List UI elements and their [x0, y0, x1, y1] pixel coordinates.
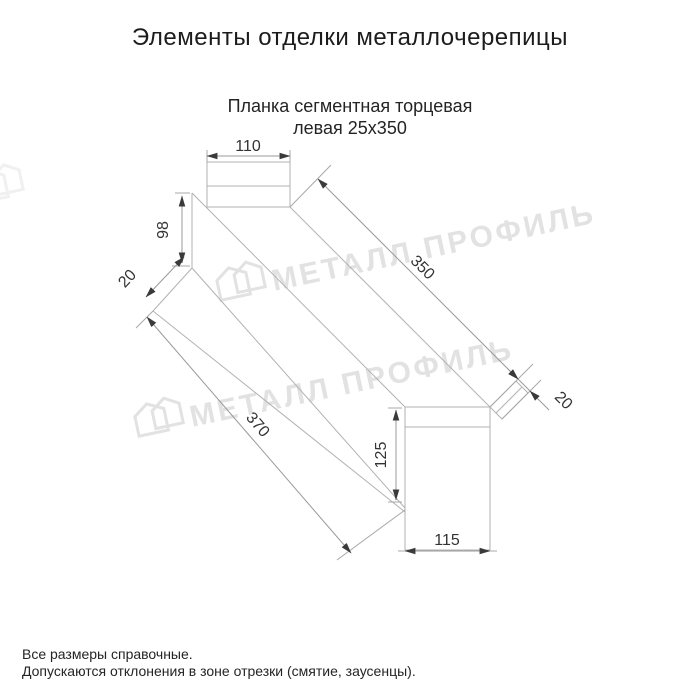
- dimension-top-width: 110: [207, 138, 290, 156]
- dimension-left-hem: 20: [115, 257, 184, 297]
- ext-98: [172, 193, 190, 266]
- watermark-text: МЕТАЛЛ ПРОФИЛЬ: [269, 197, 599, 298]
- end-tab-fold-line: [496, 387, 522, 413]
- metall-profil-logo-icon: [0, 162, 24, 203]
- dimension-length-bottom: 370: [147, 317, 351, 553]
- dim-label-20-right: 20: [551, 389, 576, 414]
- watermark-text: МЕТАЛЛ ПРОФИЛЬ: [187, 333, 517, 434]
- metall-profil-logo-icon: [132, 395, 184, 436]
- footer-note-2: Допускаются отклонения в зоне отрезки (с…: [22, 663, 416, 680]
- watermarks: МЕТАЛЛ ПРОФИЛЬ МЕТАЛЛ ПРОФИЛЬ: [0, 162, 599, 445]
- top-tab-face: [207, 162, 290, 207]
- dim-arrow-20-right-b: [530, 391, 549, 410]
- dim-label-98: 98: [155, 221, 172, 239]
- footer-notes: Все размеры справочные. Допускаются откл…: [22, 646, 416, 680]
- end-face: [405, 407, 490, 550]
- dimension-end-height: 125: [373, 410, 396, 500]
- dimension-left-height: 98: [155, 196, 182, 263]
- footer-note-1: Все размеры справочные.: [22, 646, 416, 663]
- hem-left-cut-edge: [153, 268, 192, 311]
- dimension-end-width: 115: [405, 532, 490, 551]
- product-drawing-page: Элементы отделки металлочерепицы Планка …: [0, 0, 700, 700]
- dim-line-20-left: [146, 257, 184, 297]
- ext-125: [388, 408, 402, 502]
- dim-label-20-left: 20: [115, 267, 140, 292]
- dim-line-370: [147, 317, 351, 553]
- ext-370: [136, 311, 405, 560]
- technical-drawing: МЕТАЛЛ ПРОФИЛЬ МЕТАЛЛ ПРОФИЛЬ: [0, 0, 700, 700]
- dim-label-115: 115: [434, 532, 460, 549]
- dim-arrow-20-right-a: [508, 369, 518, 379]
- dim-label-110: 110: [235, 138, 261, 155]
- dim-label-125: 125: [373, 442, 390, 469]
- watermark-edge-fragment: [0, 162, 24, 203]
- metall-profil-logo-icon: [214, 259, 266, 300]
